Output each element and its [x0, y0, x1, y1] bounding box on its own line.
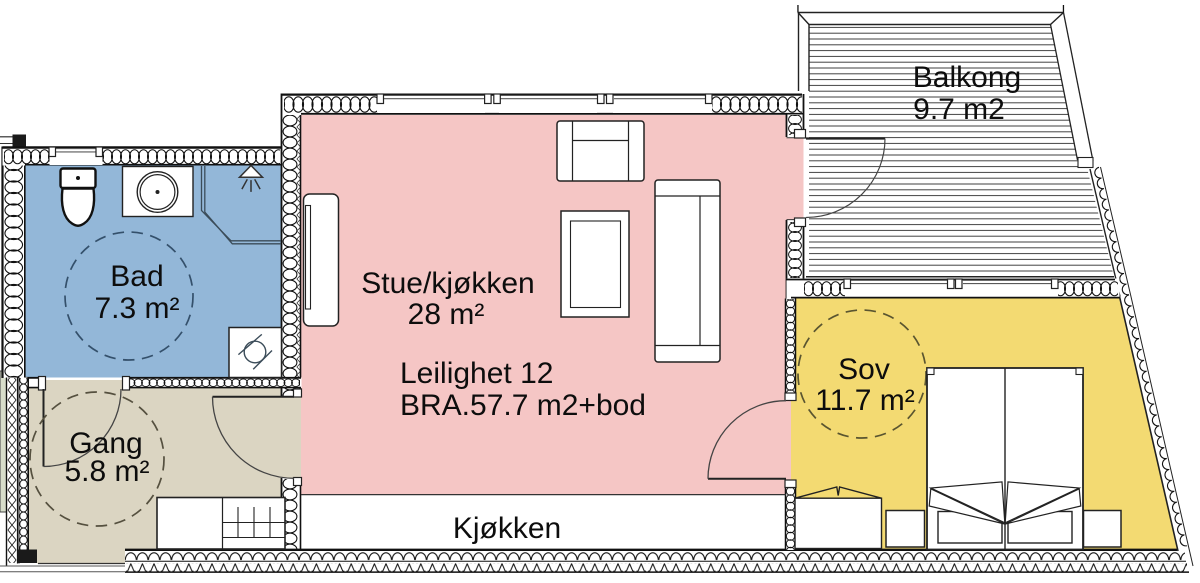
svg-text:BRA.57.7 m2+bod: BRA.57.7 m2+bod: [400, 389, 646, 422]
svg-text:11.7 m²: 11.7 m²: [815, 384, 914, 417]
svg-text:Bad: Bad: [110, 260, 163, 293]
svg-text:5.8 m²: 5.8 m²: [64, 455, 149, 488]
svg-text:7.3 m²: 7.3 m²: [94, 292, 179, 325]
svg-text:Kjøkken: Kjøkken: [453, 512, 561, 545]
svg-text:Stue/kjøkken: Stue/kjøkken: [361, 267, 534, 300]
svg-text:28 m²: 28 m²: [408, 298, 485, 331]
svg-text:Balkong: Balkong: [913, 61, 1021, 94]
svg-text:Leilighet 12: Leilighet 12: [400, 357, 553, 390]
svg-text:9.7 m2: 9.7 m2: [913, 93, 1005, 126]
svg-text:Sov: Sov: [838, 353, 890, 386]
